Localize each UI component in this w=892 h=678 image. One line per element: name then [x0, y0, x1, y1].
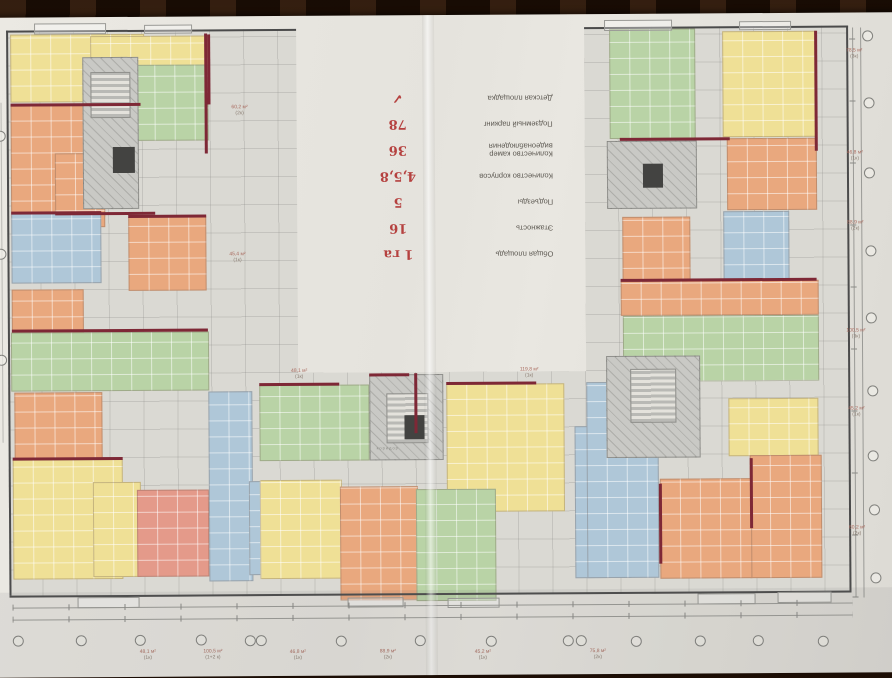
info-row: Детская площадка ✓: [350, 84, 554, 111]
info-row: Общая площадь 1 га: [351, 240, 555, 267]
area-label: 119,8 м² (1к): [509, 366, 549, 378]
area-label: 60,2 м² (2к): [220, 104, 260, 116]
info-row: Подъезды 5: [351, 188, 555, 215]
area-label: 46,8 м² (1к): [827, 149, 883, 161]
apartment-block: [208, 391, 253, 581]
apartment-block: [14, 392, 102, 461]
balcony: [739, 21, 791, 30]
drawing-paper: коридор: [0, 12, 892, 677]
info-value: 5: [375, 195, 421, 210]
grid-bubble: [865, 245, 876, 256]
area-label: 60,2 м² (2к): [829, 524, 885, 536]
wall-segment: [446, 381, 536, 385]
photo-of-floor-plan: { "photo": { "subject": "residential com…: [0, 0, 892, 670]
info-value: 16: [375, 221, 421, 236]
wall-segment: [259, 383, 339, 386]
checkmark-icon: ✓: [374, 91, 420, 106]
grid-bubble: [0, 131, 6, 142]
grid-bubble: [0, 355, 7, 366]
info-label: Подземный паркинг: [484, 119, 553, 128]
info-value: 4,5,8: [375, 169, 421, 184]
area-label: 48,1 м² (1к): [279, 368, 319, 380]
elevator-shaft: [643, 164, 663, 188]
apartment-block: [134, 64, 208, 140]
area-label: 45,4 м² (1к): [217, 251, 257, 263]
paper-shading: [0, 587, 892, 677]
apartment-block: [259, 384, 369, 461]
dimension-line: [1, 103, 4, 443]
apartment-block: [609, 28, 696, 139]
wall-segment: [369, 373, 409, 376]
wall-segment: [414, 373, 417, 433]
dimension-line: [860, 27, 864, 597]
info-value: 78: [375, 117, 421, 132]
grid-bubble: [868, 450, 879, 461]
stair-flight: [90, 72, 130, 118]
balcony: [144, 25, 192, 34]
grid-bubble: [870, 572, 881, 583]
apartment-block: [621, 280, 819, 316]
info-label: Количество камер видеонаблюдения: [425, 141, 553, 159]
area-label: 88,9 м² (2к): [827, 219, 883, 231]
apartment-block: [11, 331, 209, 391]
info-row: Количество корпусов 4,5,8: [351, 162, 555, 189]
info-label: Общая площадь: [495, 249, 553, 258]
grid-bubble: [864, 167, 875, 178]
wall-segment: [659, 484, 662, 564]
apartment-block: [11, 213, 101, 284]
apartment-block: [728, 398, 818, 457]
apartment-block: [340, 486, 419, 600]
info-label: Этажность: [516, 223, 553, 232]
grid-bubble: [867, 385, 878, 396]
info-row: Этажность 16: [351, 214, 555, 241]
project-info-table: Общая площадь 1 га Этажность 16 Подъезды…: [350, 84, 555, 267]
apartment-block: [128, 216, 206, 290]
balcony: [34, 23, 106, 34]
wall-segment: [128, 214, 206, 217]
area-label: 100,5 м² (3к): [828, 327, 884, 339]
area-label: 78,5 м² (3к): [826, 47, 882, 59]
apartment-block: [723, 211, 789, 281]
balcony: [604, 20, 672, 31]
apartment-block: [750, 455, 823, 578]
info-row: Подземный паркинг 78: [351, 110, 555, 137]
info-value: 36: [375, 143, 421, 158]
area-label: 45,2 м² (1к): [828, 405, 884, 417]
info-label: Детская площадка: [488, 93, 553, 102]
apartment-block: [93, 482, 142, 577]
apartment-block: [12, 289, 84, 333]
stair-flight: [630, 369, 676, 423]
apartment-block: [137, 489, 210, 576]
grid-bubble: [869, 504, 880, 515]
info-label: Подъезды: [518, 197, 553, 206]
core-label: коридор: [377, 445, 399, 450]
apartment-block: [727, 138, 817, 211]
apartment-block: [260, 480, 343, 579]
info-value: 1 га: [375, 247, 421, 262]
grid-bubble: [0, 249, 6, 260]
apartment-block: [722, 31, 817, 138]
info-row: Количество камер видеонаблюдения 36: [351, 136, 555, 163]
wall-segment: [11, 211, 101, 215]
wall-segment: [207, 34, 210, 104]
grid-bubble: [863, 97, 874, 108]
info-label: Количество корпусов: [479, 171, 553, 180]
grid-bubble: [862, 30, 873, 41]
grid-bubble: [866, 312, 877, 323]
elevator-shaft: [113, 147, 135, 173]
apartment-block: [660, 478, 753, 579]
wall-segment: [750, 458, 753, 528]
